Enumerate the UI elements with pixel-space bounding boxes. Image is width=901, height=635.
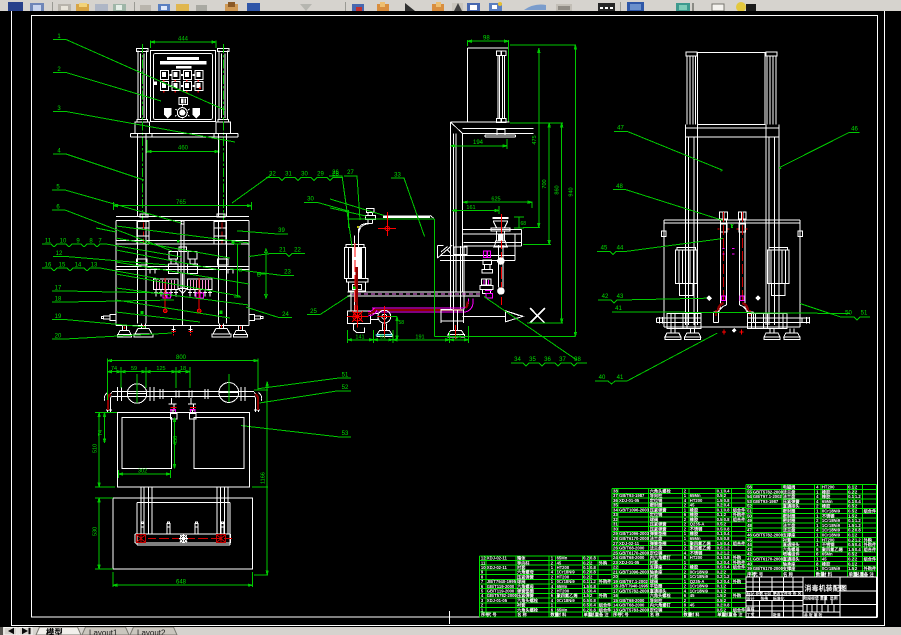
svg-text:0.2: 0.2: [583, 556, 589, 561]
svg-text:0.1: 0.1: [848, 485, 854, 490]
svg-text:30: 30: [307, 197, 314, 203]
svg-text:材 料: 材 料: [556, 611, 567, 618]
svg-text:1: 1: [684, 541, 687, 546]
svg-text:0.8: 0.8: [590, 570, 596, 575]
svg-text:张伟: 张伟: [761, 596, 769, 601]
svg-text:43: 43: [747, 547, 752, 552]
svg-text:98: 98: [483, 36, 490, 42]
svg-text:HT200: HT200: [557, 574, 570, 579]
svg-text:Q235-A: Q235-A: [690, 522, 705, 527]
svg-text:53: 53: [747, 499, 752, 504]
svg-text:0.4: 0.4: [724, 531, 730, 536]
svg-text:JB/T7940-1995: JB/T7940-1995: [487, 579, 517, 584]
svg-text:0.5: 0.5: [717, 493, 723, 498]
svg-text:1: 1: [816, 523, 819, 528]
svg-text:6: 6: [551, 593, 554, 598]
svg-text:外购: 外购: [864, 536, 872, 543]
svg-text:0.5: 0.5: [717, 536, 723, 541]
svg-text:38: 38: [613, 489, 618, 494]
svg-text:16: 16: [613, 593, 618, 598]
svg-text:52: 52: [342, 385, 349, 391]
svg-text:0.1: 0.1: [717, 508, 723, 513]
svg-text:32: 32: [613, 517, 618, 522]
svg-text:2: 2: [684, 503, 687, 508]
svg-text:共 张 第 张: 共 张 第 张: [804, 612, 823, 617]
svg-text:2: 2: [684, 489, 687, 494]
svg-text:0Cr18Ni9: 0Cr18Ni9: [822, 509, 841, 514]
svg-text:51: 51: [747, 509, 752, 514]
svg-text:1Cr18Ni9: 1Cr18Ni9: [690, 584, 709, 589]
svg-text:外购: 外购: [733, 578, 741, 585]
svg-text:备 注: 备 注: [599, 611, 609, 618]
svg-text:74: 74: [111, 366, 117, 372]
svg-text:GB/T1096-2003: GB/T1096-2003: [619, 531, 650, 536]
svg-text:1: 1: [816, 542, 819, 547]
svg-text:XDJ-01-05: XDJ-01-05: [619, 560, 640, 565]
svg-text:材 料: 材 料: [689, 611, 700, 618]
svg-text:2: 2: [724, 593, 727, 598]
svg-text:外购件: 外购件: [599, 578, 612, 585]
svg-text:24: 24: [282, 312, 289, 318]
svg-text:1.2: 1.2: [855, 537, 861, 542]
svg-text:18: 18: [613, 584, 618, 589]
svg-text:6: 6: [481, 584, 484, 589]
svg-text:0.8: 0.8: [724, 508, 730, 513]
svg-text:530: 530: [93, 527, 99, 536]
svg-text:HT200: HT200: [822, 537, 835, 542]
svg-text:4: 4: [816, 499, 819, 504]
svg-text:标准化: 标准化: [772, 596, 785, 601]
svg-text:21: 21: [613, 569, 618, 574]
svg-text:59: 59: [131, 366, 137, 372]
svg-text:1.2: 1.2: [855, 523, 861, 528]
svg-text:0.4: 0.4: [590, 589, 596, 594]
svg-text:6: 6: [684, 512, 687, 517]
svg-text:2: 2: [855, 504, 858, 509]
svg-text:0.4: 0.4: [724, 565, 730, 570]
svg-text:1.5: 1.5: [583, 584, 589, 589]
svg-text:800: 800: [176, 355, 187, 361]
svg-text:8: 8: [684, 555, 687, 560]
svg-text:1.5: 1.5: [717, 498, 723, 503]
svg-text:8: 8: [816, 561, 819, 566]
svg-text:GB/T5782-2000: GB/T5782-2000: [753, 533, 784, 538]
svg-text:39: 39: [747, 566, 752, 571]
svg-text:0.1: 0.1: [583, 579, 589, 584]
svg-text:141: 141: [355, 334, 364, 340]
svg-text:0.8: 0.8: [590, 598, 596, 603]
svg-text:22: 22: [613, 565, 618, 570]
svg-text:0.2: 0.2: [583, 574, 589, 579]
svg-text:六角头螺栓: 六角头螺栓: [650, 488, 672, 495]
svg-text:4: 4: [816, 494, 819, 499]
svg-text:0.2: 0.2: [717, 574, 723, 579]
svg-text:1: 1: [684, 536, 687, 541]
svg-text:51: 51: [861, 311, 868, 317]
svg-text:54: 54: [747, 494, 752, 499]
svg-text:0.2: 0.2: [717, 579, 723, 584]
svg-text:2: 2: [684, 546, 687, 551]
svg-text:44: 44: [617, 246, 624, 252]
svg-text:19: 19: [613, 579, 618, 584]
svg-text:组合件: 组合件: [733, 507, 746, 514]
svg-text:58: 58: [399, 320, 405, 326]
svg-text:0.1: 0.1: [717, 555, 723, 560]
svg-text:40: 40: [599, 375, 606, 381]
svg-text:0.5: 0.5: [583, 598, 589, 603]
svg-text:65Mn: 65Mn: [822, 552, 833, 557]
svg-text:1: 1: [816, 509, 819, 514]
svg-text:0.2: 0.2: [583, 560, 589, 565]
svg-text:XDJ-02-11: XDJ-02-11: [487, 565, 508, 570]
svg-text:JB/T7940-1995: JB/T7940-1995: [619, 584, 649, 589]
svg-text:6: 6: [816, 552, 819, 557]
svg-text:33: 33: [613, 512, 618, 517]
svg-text:51: 51: [380, 334, 386, 340]
svg-text:21: 21: [279, 248, 286, 254]
svg-text:0.5: 0.5: [717, 546, 723, 551]
svg-text:0.5: 0.5: [717, 565, 723, 570]
svg-text:8: 8: [684, 603, 687, 608]
svg-text:4: 4: [551, 584, 554, 589]
svg-text:GB/T5782-2000: GB/T5782-2000: [487, 593, 518, 598]
svg-text:1: 1: [551, 556, 554, 561]
svg-text:34: 34: [514, 357, 521, 363]
svg-text:2: 2: [724, 584, 727, 589]
svg-text:1: 1: [684, 508, 687, 513]
svg-text:0.5: 0.5: [717, 527, 723, 532]
svg-text:GB/T97.1-2002: GB/T97.1-2002: [619, 579, 649, 584]
svg-text:8: 8: [481, 574, 484, 579]
svg-text:30: 30: [301, 172, 308, 178]
svg-text:36: 36: [544, 357, 551, 363]
svg-text:47: 47: [747, 528, 752, 533]
svg-text:0.8: 0.8: [724, 498, 730, 503]
svg-text:1166: 1166: [261, 472, 267, 484]
svg-text:设计: 设计: [747, 596, 755, 601]
svg-text:4: 4: [684, 550, 687, 555]
svg-text:36: 36: [613, 498, 618, 503]
svg-text:0.4: 0.4: [855, 547, 861, 552]
svg-text:GB/T6170-2000: GB/T6170-2000: [753, 557, 784, 562]
svg-text:41: 41: [747, 557, 752, 562]
svg-text:1.2: 1.2: [724, 550, 730, 555]
svg-text:备 注: 备 注: [733, 611, 743, 618]
svg-text:26: 26: [613, 546, 618, 551]
svg-text:37: 37: [559, 357, 566, 363]
svg-text:38: 38: [574, 357, 581, 363]
svg-text:GB/T68-2000: GB/T68-2000: [619, 546, 645, 551]
svg-text:0.2: 0.2: [717, 550, 723, 555]
svg-text:460: 460: [178, 146, 189, 152]
svg-text:0.8: 0.8: [855, 528, 861, 533]
svg-text:1: 1: [684, 579, 687, 584]
svg-text:765: 765: [176, 200, 187, 206]
svg-text:2: 2: [684, 517, 687, 522]
svg-text:1.5: 1.5: [848, 513, 854, 518]
svg-text:GB/T93-1987: GB/T93-1987: [753, 499, 779, 504]
svg-text:65Mn: 65Mn: [690, 536, 701, 541]
svg-text:2: 2: [855, 557, 858, 562]
svg-text:65Mn: 65Mn: [557, 584, 568, 589]
svg-text:1: 1: [816, 513, 819, 518]
svg-text:组合件: 组合件: [864, 556, 877, 563]
svg-text:5: 5: [481, 589, 484, 594]
svg-text:2: 2: [684, 527, 687, 532]
svg-text:0.1: 0.1: [848, 518, 854, 523]
svg-text:1.2: 1.2: [855, 494, 861, 499]
svg-text:40: 40: [747, 561, 752, 566]
svg-text:648: 648: [176, 580, 187, 586]
svg-text:GB/T5782-2000: GB/T5782-2000: [753, 489, 784, 494]
svg-text:35: 35: [529, 357, 536, 363]
svg-text:10: 10: [481, 565, 486, 570]
svg-text:12: 12: [481, 556, 486, 561]
svg-text:50: 50: [845, 311, 852, 317]
svg-text:51: 51: [342, 372, 349, 378]
svg-text:GB/T68-2000: GB/T68-2000: [619, 555, 645, 560]
svg-text:外购: 外购: [733, 554, 741, 561]
svg-text:0.1: 0.1: [848, 494, 854, 499]
svg-text:0Cr18Ni9: 0Cr18Ni9: [822, 566, 841, 571]
svg-text:B: B: [257, 273, 261, 279]
svg-text:1: 1: [816, 489, 819, 494]
svg-text:箱体: 箱体: [517, 555, 526, 562]
svg-text:475: 475: [532, 135, 538, 144]
svg-text:18: 18: [180, 366, 186, 372]
svg-text:0.5: 0.5: [717, 598, 723, 603]
svg-text:27: 27: [613, 541, 618, 546]
svg-text:XDJ-01-05: XDJ-01-05: [619, 498, 640, 503]
svg-text:代 号: 代 号: [486, 611, 497, 618]
svg-text:2: 2: [684, 584, 687, 589]
svg-text:45: 45: [747, 537, 752, 542]
svg-text:45: 45: [690, 593, 695, 598]
svg-text:23: 23: [613, 560, 618, 565]
svg-text:65Mn: 65Mn: [690, 493, 701, 498]
svg-text:1: 1: [816, 533, 819, 538]
svg-text:名 称: 名 称: [650, 611, 660, 618]
svg-text:XDJ-02-11: XDJ-02-11: [619, 541, 640, 546]
svg-text:0.1: 0.1: [848, 499, 854, 504]
svg-text:0.8: 0.8: [724, 536, 730, 541]
svg-text:14: 14: [613, 603, 618, 608]
svg-text:27: 27: [347, 170, 354, 176]
svg-text:2: 2: [855, 566, 858, 571]
svg-text:33: 33: [394, 172, 401, 178]
svg-text:GB/T6170-2000: GB/T6170-2000: [753, 566, 784, 571]
svg-text:0.5: 0.5: [848, 504, 854, 509]
svg-text:0.2: 0.2: [717, 560, 723, 565]
svg-text:GB/T93-1987: GB/T93-1987: [619, 493, 645, 498]
svg-text:审核: 审核: [747, 606, 755, 611]
svg-text:0.4: 0.4: [724, 489, 730, 494]
svg-text:1.5: 1.5: [848, 566, 854, 571]
svg-text:32: 32: [269, 172, 276, 178]
svg-text:1.2: 1.2: [855, 518, 861, 523]
svg-text:0.2: 0.2: [848, 557, 854, 562]
svg-text:Q235-A: Q235-A: [690, 579, 705, 584]
svg-text:940: 940: [568, 187, 574, 196]
svg-text:重量: 重量: [820, 596, 828, 601]
svg-text:4: 4: [684, 588, 687, 593]
svg-text:比例: 比例: [830, 596, 838, 601]
svg-text:45: 45: [690, 603, 695, 608]
svg-text:0.4: 0.4: [724, 560, 730, 565]
svg-text:0.2: 0.2: [848, 528, 854, 533]
svg-text:4: 4: [481, 593, 484, 598]
svg-text:45: 45: [690, 503, 695, 508]
svg-text:GB/T5782-2000: GB/T5782-2000: [619, 588, 650, 593]
svg-text:52: 52: [747, 504, 752, 509]
svg-text:0.1: 0.1: [583, 565, 589, 570]
svg-text:组合件: 组合件: [733, 540, 746, 547]
svg-text:GB/T1096-2003: GB/T1096-2003: [619, 508, 650, 513]
svg-text:0.1: 0.1: [717, 512, 723, 517]
svg-text:GB/T68-2000: GB/T68-2000: [619, 603, 645, 608]
svg-text:0.8: 0.8: [724, 555, 730, 560]
svg-text:GB/T6170-2000: GB/T6170-2000: [619, 550, 650, 555]
svg-text:41: 41: [615, 306, 622, 312]
svg-text:0.1: 0.1: [848, 533, 854, 538]
svg-text:0.4: 0.4: [724, 541, 730, 546]
svg-text:1.5: 1.5: [717, 593, 723, 598]
svg-text:0.2: 0.2: [848, 489, 854, 494]
svg-text:Layout2: Layout2: [137, 628, 166, 635]
svg-text:1: 1: [816, 557, 819, 562]
svg-text:1Cr18Ni9: 1Cr18Ni9: [822, 523, 841, 528]
svg-text:GB/T97.1-2002: GB/T97.1-2002: [753, 494, 783, 499]
svg-text:0.8: 0.8: [724, 603, 730, 608]
svg-text:2: 2: [551, 560, 554, 565]
svg-text:0.8: 0.8: [590, 556, 596, 561]
svg-text:26: 26: [332, 170, 339, 176]
svg-text:0.1: 0.1: [717, 588, 723, 593]
svg-text:45: 45: [557, 560, 562, 565]
svg-text:0.2: 0.2: [717, 603, 723, 608]
svg-text:15: 15: [613, 598, 618, 603]
svg-text:0.1: 0.1: [717, 584, 723, 589]
svg-text:31: 31: [613, 522, 618, 527]
svg-text:4: 4: [684, 498, 687, 503]
svg-text:1.5: 1.5: [848, 547, 854, 552]
svg-text:2: 2: [816, 504, 819, 509]
svg-text:2: 2: [481, 603, 484, 608]
svg-text:30: 30: [613, 527, 618, 532]
svg-text:XDJ-01-05: XDJ-01-05: [487, 598, 508, 603]
svg-text:2: 2: [855, 485, 858, 490]
svg-text:0.5: 0.5: [848, 552, 854, 557]
svg-text:2: 2: [684, 569, 687, 574]
svg-text:37: 37: [613, 493, 618, 498]
svg-text:电磁阀: 电磁阀: [783, 484, 796, 491]
svg-text:2: 2: [551, 574, 554, 579]
svg-text:GB/T1096-2003: GB/T1096-2003: [619, 569, 650, 574]
svg-text:代 号: 代 号: [618, 611, 629, 618]
svg-text:42: 42: [747, 552, 752, 557]
svg-text:625: 625: [491, 197, 500, 203]
svg-text:标记 处数 分区 更改文件号 签 名: 标记 处数 分区 更改文件号 签 名: [746, 591, 802, 596]
svg-text:700: 700: [542, 179, 548, 188]
svg-text:1.5: 1.5: [717, 541, 723, 546]
svg-text:2: 2: [816, 518, 819, 523]
svg-text:0.5: 0.5: [583, 603, 589, 608]
svg-text:42: 42: [602, 294, 609, 300]
svg-text:0.2: 0.2: [583, 570, 589, 575]
svg-text:橡胶: 橡胶: [690, 564, 699, 571]
svg-text:65Mn: 65Mn: [557, 556, 568, 561]
svg-text:510: 510: [93, 444, 99, 453]
svg-text:860: 860: [555, 185, 561, 194]
svg-text:68: 68: [521, 221, 527, 227]
svg-text:49: 49: [747, 518, 752, 523]
svg-text:0.8: 0.8: [590, 584, 596, 589]
svg-text:0.5: 0.5: [717, 522, 723, 527]
svg-text:11: 11: [481, 560, 486, 565]
svg-text:17: 17: [613, 588, 618, 593]
svg-text:批准: 批准: [773, 612, 781, 617]
svg-text:GB/T6170-2000: GB/T6170-2000: [619, 536, 650, 541]
svg-text:2: 2: [855, 552, 858, 557]
svg-text:HT200: HT200: [557, 589, 570, 594]
svg-text:1: 1: [551, 579, 554, 584]
svg-text:1.2: 1.2: [590, 579, 596, 584]
svg-text:0.5: 0.5: [717, 517, 723, 522]
svg-text:1: 1: [684, 493, 687, 498]
svg-text:1Cr18Ni9: 1Cr18Ni9: [690, 588, 709, 593]
svg-text:2: 2: [551, 589, 554, 594]
svg-text:GB/T119-2000: GB/T119-2000: [487, 584, 515, 589]
svg-text:1Cr18Ni9: 1Cr18Ni9: [690, 574, 709, 579]
svg-text:74: 74: [98, 430, 104, 436]
svg-text:GB/T119-2000: GB/T119-2000: [487, 589, 515, 594]
svg-text:50: 50: [747, 513, 752, 518]
svg-text:1Cr18Ni9: 1Cr18Ni9: [822, 528, 841, 533]
svg-text:7: 7: [481, 579, 484, 584]
svg-text:20: 20: [613, 574, 618, 579]
svg-text:1.5: 1.5: [848, 523, 854, 528]
svg-text:HT200: HT200: [822, 485, 835, 490]
svg-text:1: 1: [551, 603, 554, 608]
svg-text:1: 1: [816, 566, 819, 571]
svg-text:外购: 外购: [733, 592, 741, 599]
svg-text:0.1: 0.1: [717, 489, 723, 494]
svg-text:39: 39: [278, 228, 285, 234]
svg-text:组合件: 组合件: [864, 508, 877, 515]
svg-text:0Cr18Ni9: 0Cr18Ni9: [557, 579, 576, 584]
svg-text:2: 2: [684, 598, 687, 603]
svg-text:48: 48: [616, 184, 623, 190]
svg-text:外购: 外购: [599, 592, 607, 599]
svg-text:46: 46: [747, 533, 752, 538]
svg-text:4: 4: [816, 485, 819, 490]
svg-text:1: 1: [684, 531, 687, 536]
svg-text:302: 302: [138, 469, 147, 475]
svg-text:48: 48: [747, 523, 752, 528]
svg-text:0.5: 0.5: [848, 542, 854, 547]
svg-text:24: 24: [613, 555, 618, 560]
svg-text:3: 3: [481, 598, 484, 603]
svg-text:1.2: 1.2: [724, 546, 730, 551]
svg-text:消毒机装配图: 消毒机装配图: [805, 584, 848, 593]
svg-text:6: 6: [684, 593, 687, 598]
svg-text:模型: 模型: [46, 628, 63, 635]
svg-text:47: 47: [617, 126, 624, 132]
svg-text:1.5: 1.5: [583, 589, 589, 594]
svg-text:46: 46: [851, 127, 858, 133]
svg-text:0.8: 0.8: [590, 565, 596, 570]
svg-text:194: 194: [473, 140, 484, 146]
